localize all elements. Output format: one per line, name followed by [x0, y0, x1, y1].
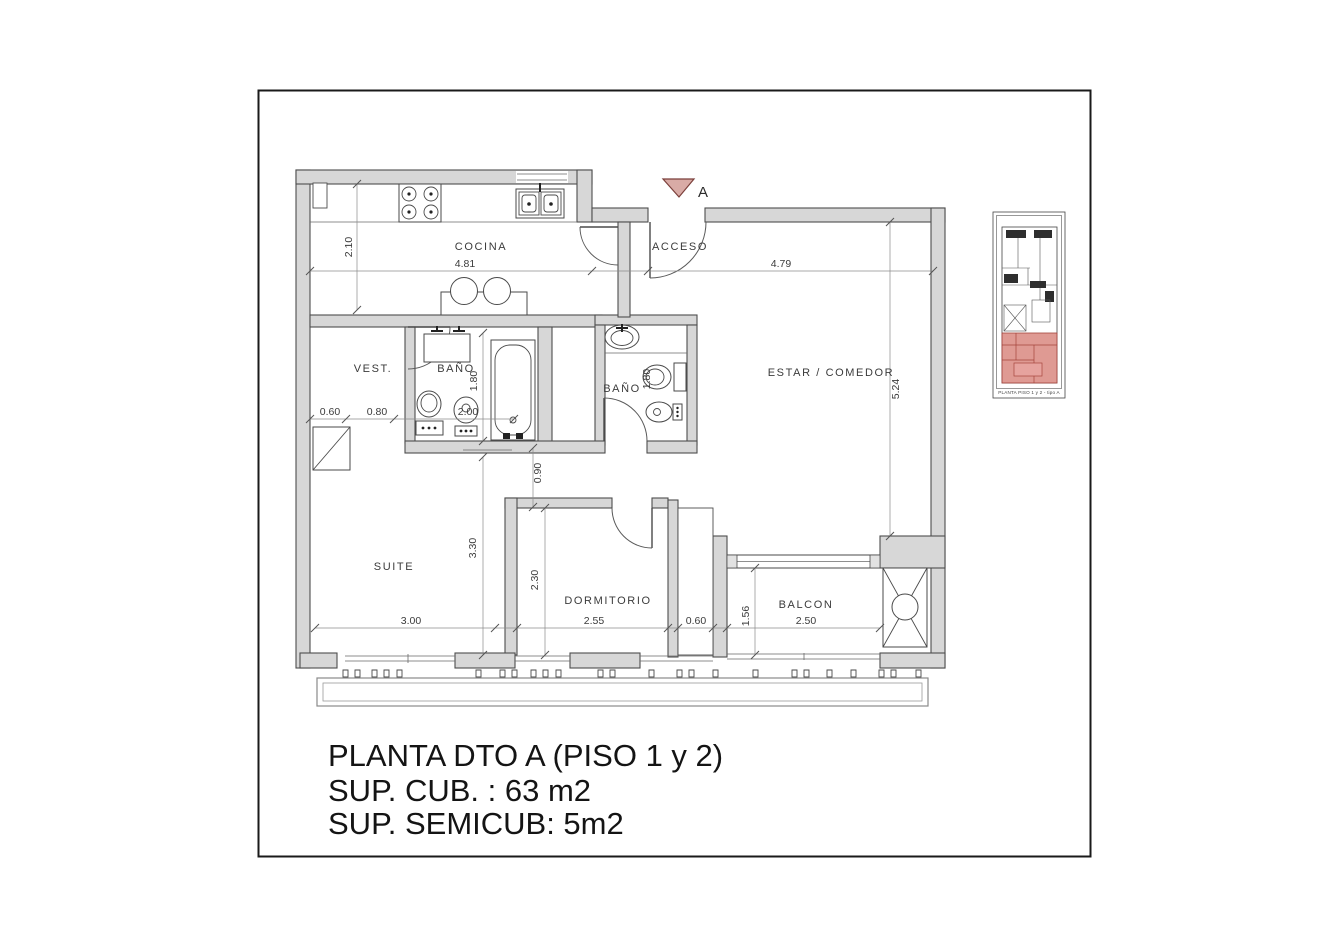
key-plan: PLANTA PISO 1 y 2 - tipo A — [993, 212, 1065, 398]
title-line-3: SUP. SEMICUB: 5m2 — [328, 806, 624, 841]
floor-plan-drawing: 4.81 4.79 2.10 5.24 0.60 0.80 2.00 1.80 … — [0, 0, 1344, 950]
dim-bath-second-depth: 1.80 — [641, 369, 653, 390]
title-block: PLANTA DTO A (PISO 1 y 2) SUP. CUB. : 63… — [328, 738, 723, 841]
kitchen-sink-icon — [516, 189, 564, 218]
dim-bath-main-width: 2.00 — [458, 406, 479, 418]
room-label-suite: SUITE — [374, 561, 414, 573]
dim-duct-width: 0.60 — [686, 615, 707, 627]
title-line-2: SUP. CUB. : 63 m2 — [328, 773, 591, 808]
dim-dressing-seg1: 0.60 — [320, 406, 341, 418]
section-marker-label: A — [698, 184, 708, 201]
shafts — [313, 427, 927, 647]
key-plan-caption: PLANTA PISO 1 y 2 - tipo A — [998, 390, 1060, 395]
planter-band — [317, 678, 928, 706]
duct-between-bedroom-balcony — [678, 508, 713, 655]
bathtub-icon — [491, 340, 535, 440]
stove-icon — [399, 184, 441, 222]
room-label-acceso: ACCESO — [652, 241, 708, 253]
bidet-icon — [646, 402, 672, 422]
room-label-bano-principal: BAÑO — [437, 362, 475, 375]
room-label-dormitorio: DORMITORIO — [564, 595, 651, 607]
dim-balcony-width: 2.50 — [796, 615, 817, 627]
room-label-bano-secundario: BAÑO — [603, 382, 641, 395]
windows — [345, 171, 880, 663]
floor-plan-page: 4.81 4.79 2.10 5.24 0.60 0.80 2.00 1.80 … — [0, 0, 1344, 950]
dim-living-height: 5.24 — [890, 379, 902, 400]
dim-bedroom-width: 2.55 — [584, 615, 605, 627]
room-label-balcon: BALCON — [779, 599, 834, 611]
bedroom-door-arc — [612, 508, 652, 548]
balcony-sliding-door — [727, 555, 880, 568]
bath-second-door-arc — [604, 398, 647, 441]
dim-bedroom-depth: 2.30 — [529, 570, 541, 591]
dim-hall-width: 0.90 — [532, 463, 544, 484]
room-label-vestidor: VEST. — [354, 363, 393, 375]
room-label-estar-comedor: ESTAR / COMEDOR — [768, 367, 894, 379]
dim-living-width: 4.79 — [771, 258, 792, 270]
title-line-1: PLANTA DTO A (PISO 1 y 2) — [328, 738, 723, 773]
terrace-railing — [343, 670, 921, 677]
dim-suite-width: 3.00 — [401, 615, 422, 627]
dim-kitchen-depth: 2.10 — [343, 237, 355, 258]
dim-balcony-depth: 1.56 — [740, 606, 752, 627]
dim-suite-depth: 3.30 — [467, 538, 479, 559]
dim-dressing-seg2: 0.80 — [367, 406, 388, 418]
section-triangle-icon — [663, 179, 694, 197]
dim-kitchen-width: 4.81 — [455, 258, 476, 270]
kitchen-door-arc — [580, 227, 618, 265]
section-marker: A — [663, 179, 708, 201]
room-label-cocina: COCINA — [455, 241, 507, 253]
vanity-icon — [424, 334, 470, 362]
